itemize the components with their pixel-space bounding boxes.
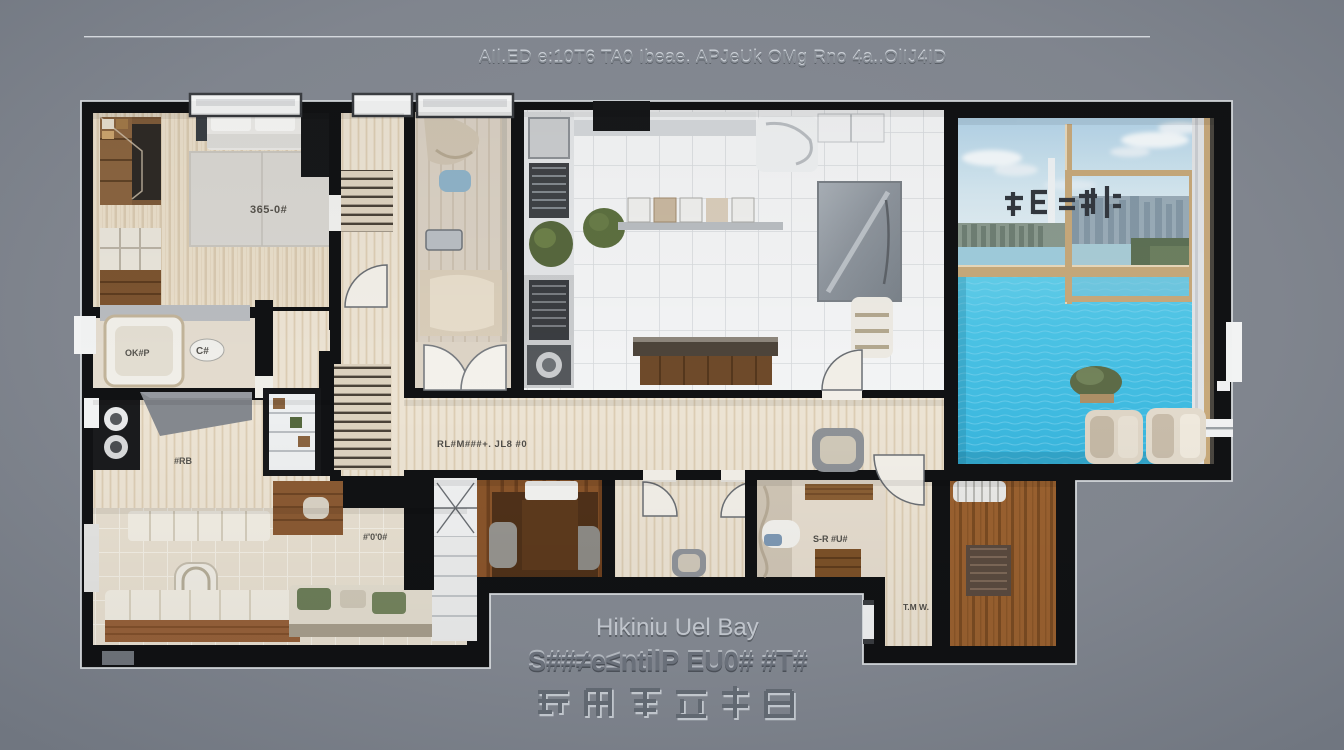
svg-text:AIl.ED e:10T6 TA0 Ibeae. APJeU: AIl.ED e:10T6 TA0 Ibeae. APJeUk OMg Rno … (479, 47, 947, 67)
svg-text:S##≠e≤ntilP EU0# #T#: S##≠e≤ntilP EU0# #T# (528, 647, 808, 677)
svg-text:Hikiniu Uel Bay: Hikiniu Uel Bay (596, 614, 759, 641)
